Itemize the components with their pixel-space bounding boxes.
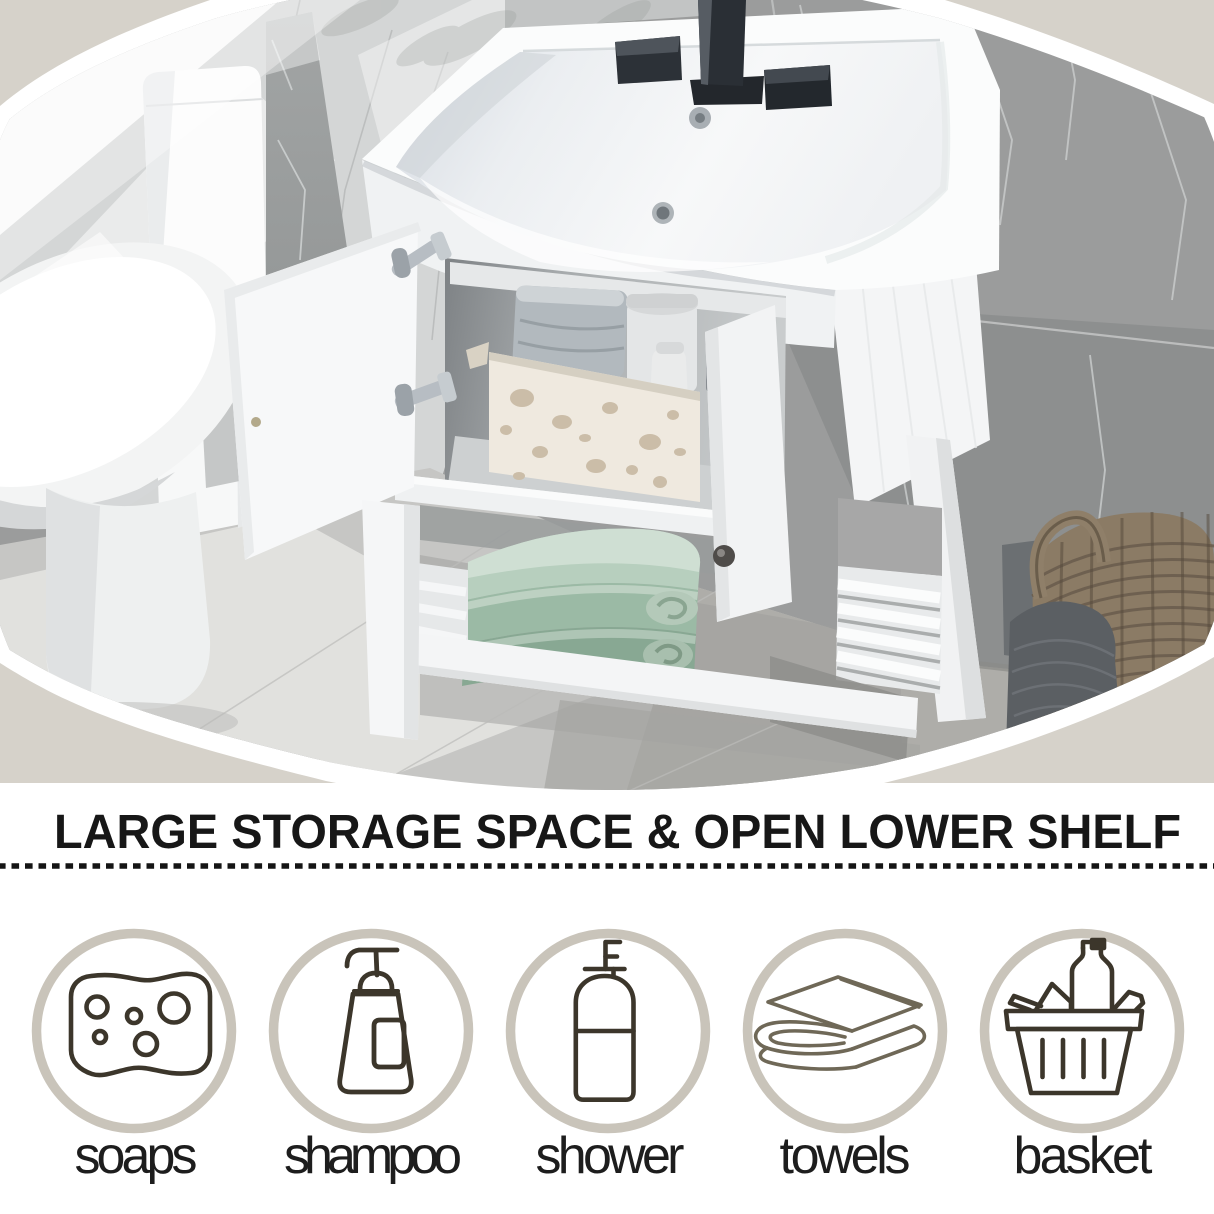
svg-text:soaps: soaps: [75, 1127, 198, 1185]
svg-text:towels: towels: [780, 1127, 911, 1185]
svg-text:shampoo: shampoo: [284, 1127, 462, 1185]
svg-text:basket: basket: [1014, 1127, 1154, 1185]
svg-text:shower: shower: [536, 1127, 685, 1185]
svg-text:LARGE STORAGE SPACE & OPEN LOW: LARGE STORAGE SPACE & OPEN LOWER SHELF: [54, 805, 1181, 859]
